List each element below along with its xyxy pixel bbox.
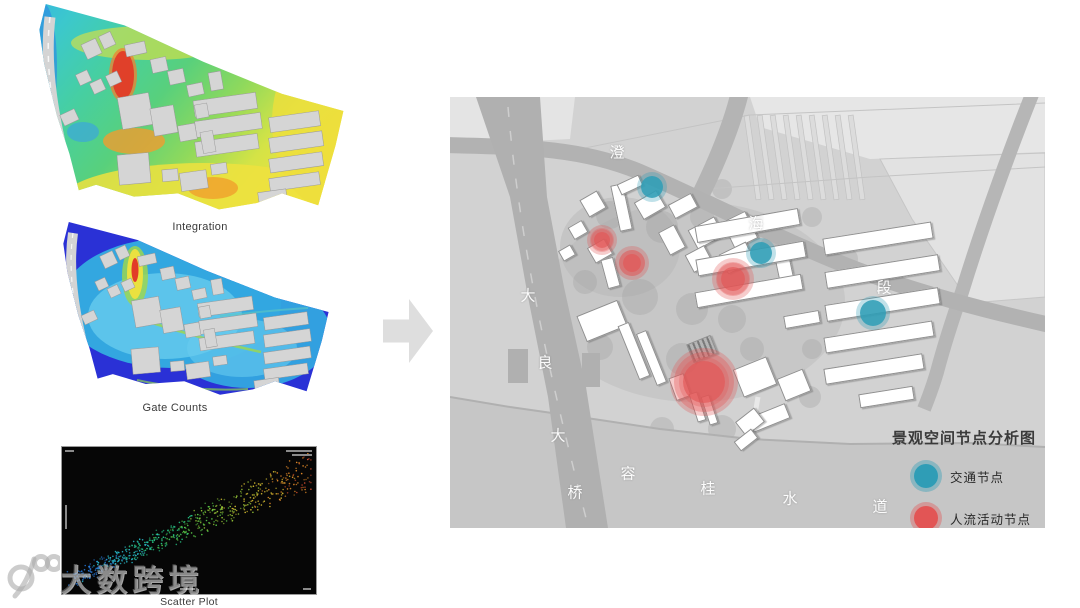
scatter-x-max-tick <box>303 588 311 590</box>
gate-counts-heatmap <box>55 222 330 402</box>
map-label-bridge: 大 <box>550 425 565 446</box>
integration-heatmap-svg <box>30 4 345 218</box>
map-legend: 景观空间节点分析图 交通节点 人流活动节点 <box>902 427 1042 528</box>
map-label-water: 道 <box>872 496 887 517</box>
legend-item-activity: 人流活动节点 <box>902 504 1042 528</box>
legend-label-traffic: 交通节点 <box>950 467 1004 486</box>
node-analysis-map: 澄海段大良大桥容桂水道 景观空间节点分析图 交通节点 人流活动节点 <box>450 97 1045 528</box>
map-label-road: 澄 <box>609 142 624 163</box>
watermark-100-logo-icon <box>6 550 60 604</box>
map-label-bridge: 桥 <box>567 482 582 503</box>
map-label-bridge: 大 <box>520 285 535 306</box>
scatter-y-axis-label <box>65 505 67 529</box>
map-label-water: 容 <box>620 463 635 484</box>
legend-title: 景观空间节点分析图 <box>892 427 1042 448</box>
right-arrow-icon <box>383 299 433 363</box>
gate-counts-caption: Gate Counts <box>40 402 310 414</box>
scatter-stats-annotation-2 <box>292 454 312 456</box>
watermark: 大数跨境 <box>6 550 204 604</box>
scatter-stats-annotation <box>286 450 312 452</box>
watermark-text: 大数跨境 <box>60 555 204 600</box>
gate-counts-heatmap-svg <box>55 222 330 402</box>
map-label-bridge: 良 <box>537 352 552 373</box>
map-label-road: 海 <box>748 213 763 234</box>
scatter-corner-annotation <box>65 450 74 452</box>
slide-canvas: Integration Gat <box>0 0 1080 608</box>
map-label-road: 段 <box>876 277 891 298</box>
map-label-water: 水 <box>782 488 797 509</box>
activity-node-icon <box>914 506 938 528</box>
traffic-node-icon <box>914 464 938 488</box>
legend-label-activity: 人流活动节点 <box>950 509 1031 528</box>
integration-heatmap <box>30 4 345 218</box>
map-label-water: 桂 <box>700 478 715 499</box>
legend-item-traffic: 交通节点 <box>902 462 1042 490</box>
